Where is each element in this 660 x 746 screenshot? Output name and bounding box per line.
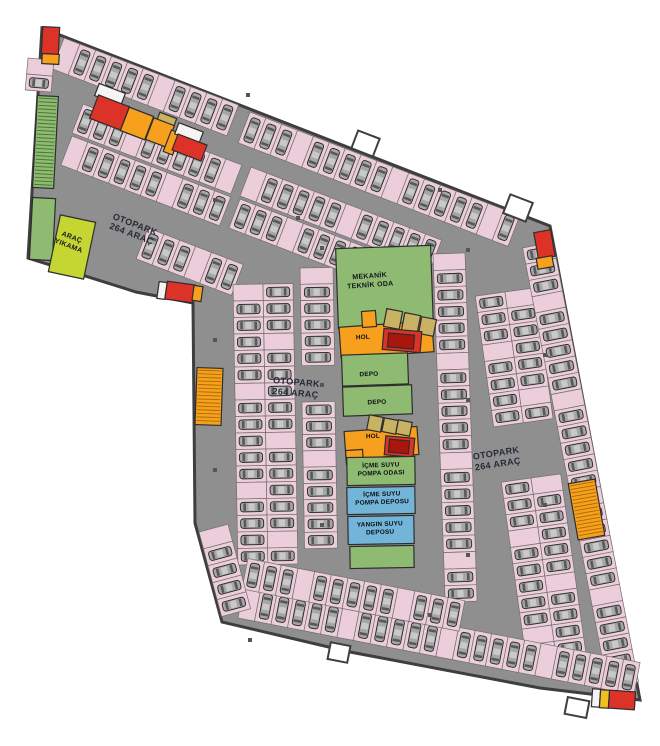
car (308, 503, 333, 513)
stair-core-west-orange (192, 285, 203, 301)
car (239, 420, 262, 430)
car (271, 551, 294, 561)
stair-core-bottomright-red (608, 690, 635, 710)
car (268, 353, 291, 363)
parking-stall (433, 253, 466, 271)
tan-room-1a (383, 309, 402, 330)
stairs-left-upper (33, 96, 59, 189)
parking-floor-plan-page: OTOPARK 264 ARAÇ ARAÇ YIKAMA OTOPARK 264… (0, 0, 660, 746)
tan-room-2a (367, 415, 384, 432)
car (445, 489, 470, 499)
plan-geometry (25, 27, 640, 718)
car (446, 522, 471, 532)
svg-text:HOL: HOL (356, 334, 370, 342)
car (441, 389, 466, 399)
pillar (428, 613, 432, 617)
car (238, 354, 261, 364)
parking-stall (264, 333, 294, 350)
parking-stall (266, 432, 296, 449)
car (267, 320, 290, 330)
parking-stall (267, 531, 297, 548)
parking-stall (443, 552, 476, 570)
car (271, 518, 294, 528)
car (241, 535, 264, 545)
car (269, 403, 292, 413)
car (240, 469, 263, 479)
car (270, 502, 293, 512)
parking-stall (233, 284, 263, 301)
car (240, 502, 263, 512)
stair-core-topleft-orange (42, 54, 60, 65)
parking-stall (236, 482, 266, 499)
vent-notch-bottom-2-shape (565, 697, 590, 718)
pillar (320, 246, 324, 250)
car (238, 370, 261, 380)
tan-room-2c-shape (396, 420, 412, 436)
car (308, 535, 333, 545)
car (443, 439, 468, 449)
car (305, 303, 330, 313)
pillar (320, 523, 324, 527)
pillar (543, 503, 547, 507)
stair-core-bottomright-red-shape (608, 690, 635, 710)
car (442, 422, 467, 432)
label-depo-1: DEPO (359, 371, 378, 379)
hol-upper-stub (361, 311, 376, 328)
car (29, 77, 49, 88)
car (267, 304, 290, 314)
car (270, 485, 293, 495)
car (305, 336, 330, 346)
vent-notch-bottom-2 (565, 697, 590, 718)
car (438, 306, 463, 316)
pillar (213, 468, 217, 472)
svg-text:HOL: HOL (366, 433, 380, 440)
car (307, 437, 332, 447)
label-hol-upper: HOL (356, 334, 370, 342)
pillar (296, 216, 300, 220)
car (267, 287, 290, 297)
car (445, 505, 470, 515)
stairs-left-lower (29, 197, 55, 260)
car (439, 323, 464, 333)
stair-core-topleft-orange-shape (42, 54, 60, 65)
car (239, 453, 262, 463)
label-icme-suyu-pompa-odasi: İÇME SUYU POMPA ODASI (357, 459, 405, 478)
car (269, 452, 292, 462)
depo1-room-shape (341, 353, 408, 386)
car (444, 472, 469, 482)
parking-stall (440, 452, 473, 470)
pillar (248, 638, 252, 642)
label-otopark-west: OTOPARK 264 ARAÇ (272, 375, 321, 400)
label-depo-2: DEPO (367, 399, 386, 407)
tan-room-1a-shape (383, 309, 402, 330)
car (237, 337, 260, 347)
parking-stall (436, 352, 469, 370)
pillar (213, 338, 217, 342)
car (440, 340, 465, 350)
parking-row-west-col-right (263, 283, 298, 564)
svg-text:DEPO: DEPO (359, 371, 378, 379)
stairs-left-lower-shape (29, 197, 55, 260)
car (239, 436, 262, 446)
pillar (466, 553, 470, 557)
south-green-room (350, 545, 414, 568)
parking-floor-plan: OTOPARK 264 ARAÇ ARAÇ YIKAMA OTOPARK 264… (0, 0, 660, 746)
stair-core-west-red-shape (165, 281, 195, 303)
pillar (466, 248, 470, 252)
tan-room-2c (396, 420, 412, 436)
car (237, 321, 260, 331)
stair-core-topright-orange-shape (536, 256, 554, 270)
car (305, 352, 330, 362)
car (239, 403, 262, 413)
car (269, 419, 292, 429)
elevator-upper-inner-shape (387, 333, 414, 349)
pillar (466, 398, 470, 402)
elevator-lower-inner-shape (388, 439, 409, 454)
car (446, 539, 471, 549)
pillar (246, 93, 250, 97)
ramp-west (195, 368, 223, 426)
car (448, 572, 473, 582)
car (438, 290, 463, 300)
pillar (320, 383, 324, 387)
car (307, 470, 332, 480)
stair-core-west-orange-shape (192, 285, 203, 301)
car (442, 406, 467, 416)
pillar (438, 188, 442, 192)
svg-text:DEPO: DEPO (367, 399, 386, 407)
stair-core-west-red (165, 281, 195, 303)
vent-notch-bottom-1-shape (328, 642, 351, 663)
car (237, 304, 260, 314)
car (305, 320, 330, 330)
car (270, 469, 293, 479)
stair-core-topleft-red-shape (41, 27, 59, 55)
car (306, 421, 331, 431)
stair-core-topleft-red (41, 27, 59, 55)
parking-stall (303, 450, 336, 467)
label-hol-lower: HOL (366, 433, 380, 440)
car (441, 373, 466, 383)
parking-row-west-col2-lower (302, 401, 338, 548)
parking-row-west-col-left (233, 284, 268, 565)
car (306, 405, 331, 415)
vent-notch-bottom-1 (328, 642, 351, 663)
elevator-upper-inner (387, 333, 414, 349)
elevator-lower-inner (388, 439, 409, 454)
hol-upper-stub-shape (361, 311, 376, 328)
car (304, 287, 329, 297)
pillar (543, 353, 547, 357)
depo1-room (341, 353, 408, 386)
car (241, 519, 264, 529)
parking-stall (235, 383, 265, 400)
car (437, 273, 462, 283)
svg-text:DEPOSU: DEPOSU (366, 529, 395, 537)
tan-room-2a-shape (367, 415, 384, 432)
stair-core-topright-orange (536, 256, 554, 270)
south-green-room-shape (350, 545, 414, 568)
parking-stall (300, 267, 333, 284)
car (307, 486, 332, 496)
pillar (213, 198, 217, 202)
parking-row-west-col2-upper (300, 267, 335, 365)
car (448, 588, 473, 598)
